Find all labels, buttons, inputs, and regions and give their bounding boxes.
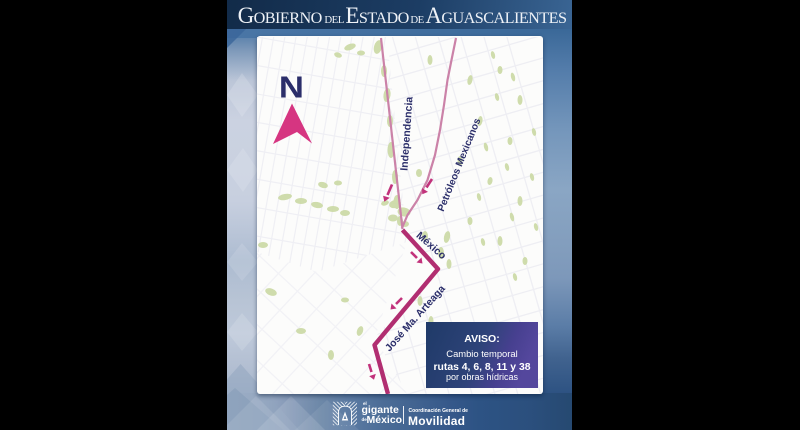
svg-text:por obras hídricas: por obras hídricas [446,372,519,382]
svg-text:AVISO:: AVISO: [464,333,499,345]
svg-text:Petróleos Mexicanos: Petróleos Mexicanos [436,116,484,213]
svg-text:N: N [279,69,304,104]
svg-text:Cambio temporal: Cambio temporal [446,348,517,359]
svg-text:Independencia: Independencia [398,96,415,171]
